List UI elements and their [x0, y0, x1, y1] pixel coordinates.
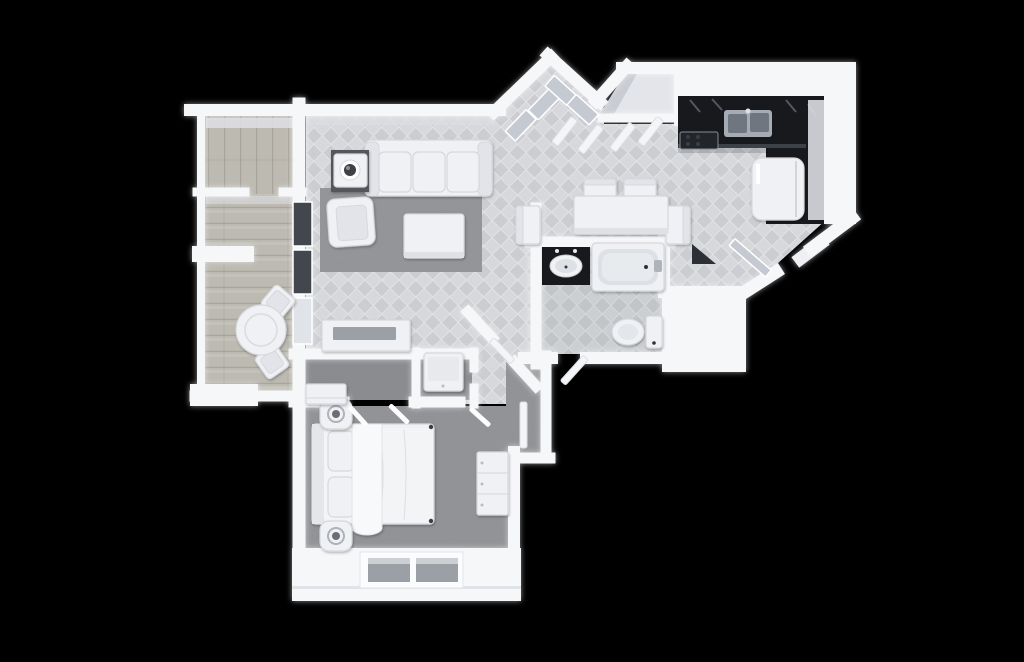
living-room-windows [293, 202, 312, 344]
stove [680, 132, 718, 149]
bed-throw [352, 424, 382, 535]
tv-console [322, 320, 410, 351]
coffee-table [404, 214, 464, 258]
bedroom-door-leaf [520, 402, 527, 448]
drain [644, 265, 648, 269]
pillow [328, 477, 354, 517]
balcony-table [236, 305, 286, 355]
balcony-planter [192, 246, 254, 262]
exterior-ledge [190, 384, 258, 406]
refrigerator [752, 158, 804, 220]
armchair [326, 196, 375, 247]
plant-side-table [331, 150, 369, 192]
dresser [477, 452, 508, 515]
tub-faucet [654, 260, 662, 272]
bathtub [592, 243, 664, 291]
headboard [312, 424, 324, 524]
washer [424, 353, 463, 391]
bathroom-vanity [542, 247, 590, 285]
faucet [555, 249, 559, 253]
kitchen-sink [724, 109, 772, 138]
bed [312, 424, 434, 535]
floor-plan-render [0, 0, 1024, 662]
balcony-slider-door [293, 298, 312, 344]
faucet [573, 249, 577, 253]
closet-shelf [306, 384, 346, 404]
sofa [365, 140, 492, 196]
nightstand [320, 521, 352, 551]
toilet [612, 316, 662, 348]
tv [333, 327, 396, 340]
plant [344, 164, 356, 176]
floor-plan-stage [0, 0, 1024, 662]
bedroom-windows [360, 552, 463, 588]
faucet [746, 109, 751, 114]
pillow [328, 431, 354, 471]
